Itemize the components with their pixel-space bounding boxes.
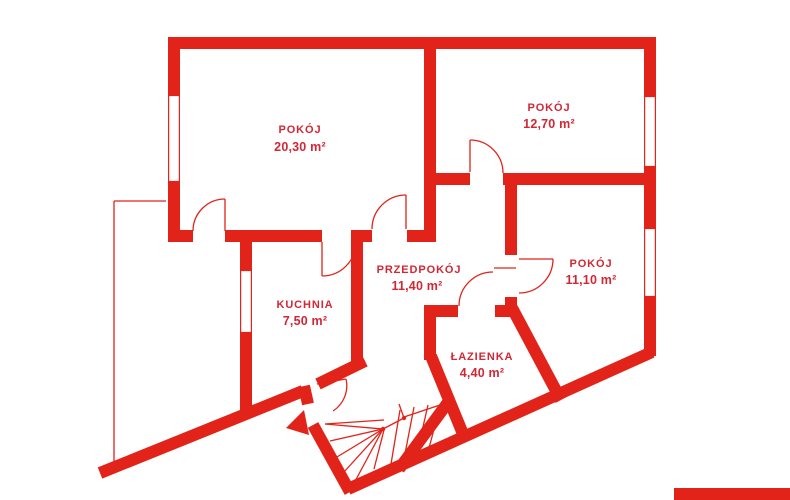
room-labels: POKÓJ 20,30 m² POKÓJ 12,70 m² POKÓJ 11,1… xyxy=(274,101,616,380)
window xyxy=(645,229,656,297)
door-arc xyxy=(322,242,356,276)
room-area-pokoj-3: 11,10 m² xyxy=(566,273,617,287)
door-arc xyxy=(193,199,225,231)
window xyxy=(645,97,656,167)
door-arc xyxy=(333,379,347,411)
room-area-lazienka: 4,40 m² xyxy=(460,366,504,380)
floor-plan-page: POKÓJ 20,30 m² POKÓJ 12,70 m² POKÓJ 11,1… xyxy=(0,0,790,500)
windows xyxy=(169,96,656,333)
room-label-pokoj-1: POKÓJ xyxy=(278,123,321,136)
stair-pivot xyxy=(381,427,385,431)
room-area-pokoj-1: 20,30 m² xyxy=(274,140,326,154)
room-label-pokoj-2: POKÓJ xyxy=(527,101,570,114)
floor-plan: POKÓJ 20,30 m² POKÓJ 12,70 m² POKÓJ 11,1… xyxy=(0,0,790,500)
door-arc xyxy=(470,140,503,173)
door-arc xyxy=(459,272,493,306)
door-arc xyxy=(519,259,553,293)
window xyxy=(169,96,180,182)
room-label-przedpokoj: PRZEDPOKÓJ xyxy=(377,263,462,276)
room-area-kuchnia: 7,50 m² xyxy=(283,314,327,328)
window xyxy=(241,271,252,333)
room-label-lazienka: ŁAZIENKA xyxy=(451,351,514,363)
room-label-pokoj-3: POKÓJ xyxy=(569,257,612,270)
room-label-kuchnia: KUCHNIA xyxy=(276,299,333,311)
cropped-wall-fragment xyxy=(674,488,790,500)
door-arc xyxy=(372,195,406,229)
entrance-arrow xyxy=(286,410,309,435)
stair-pivot xyxy=(402,416,406,420)
room-area-pokoj-2: 12,70 m² xyxy=(523,117,575,131)
room-area-przedpokoj: 11,40 m² xyxy=(392,279,443,293)
adjacent-area-outline xyxy=(114,201,166,462)
